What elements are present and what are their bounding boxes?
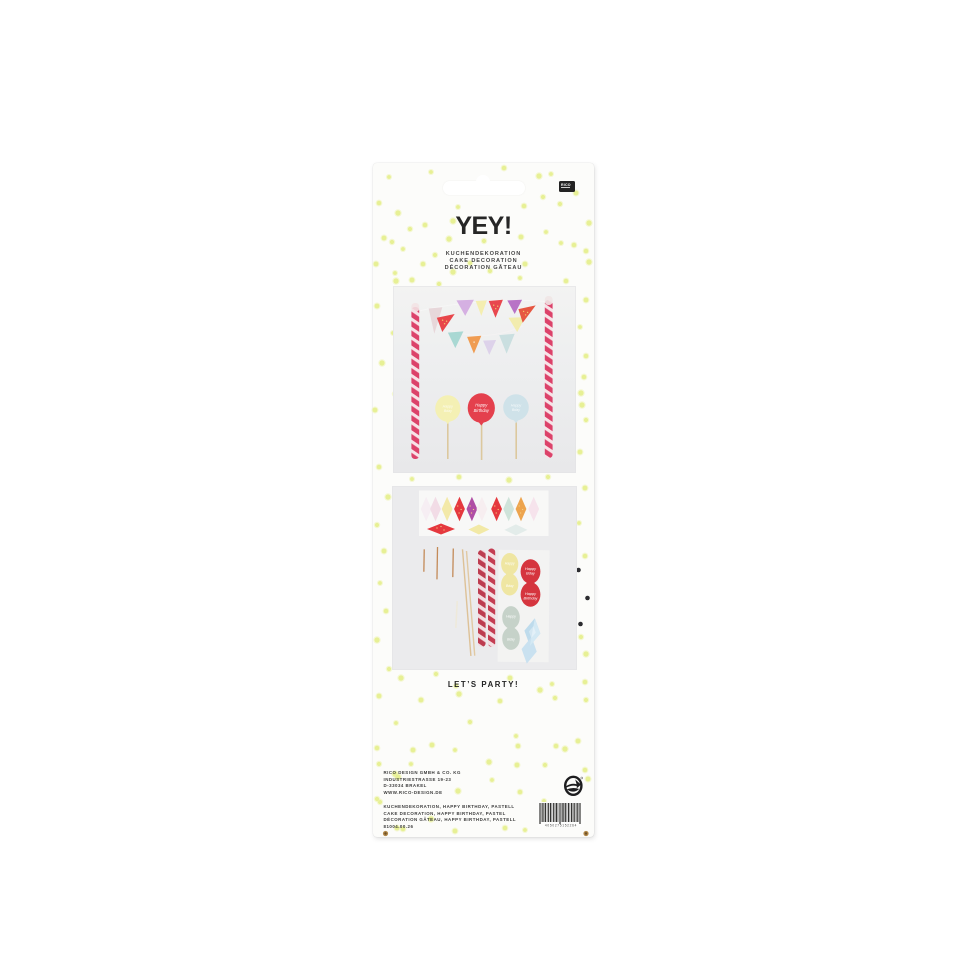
svg-text:Birthday: Birthday xyxy=(524,596,539,600)
svg-text:Bday: Bday xyxy=(526,571,536,575)
svg-text:Happy: Happy xyxy=(505,562,515,566)
svg-text:4050275152264: 4050275152264 xyxy=(545,823,577,827)
svg-text:Birthday: Birthday xyxy=(474,408,490,413)
svg-text:Happy: Happy xyxy=(506,615,516,619)
svg-text:Happy: Happy xyxy=(443,405,454,409)
svg-text:Happy: Happy xyxy=(525,592,537,596)
svg-text:Bday: Bday xyxy=(512,408,520,412)
svg-text:Happy: Happy xyxy=(525,567,537,571)
svg-text:Bday: Bday xyxy=(507,638,515,642)
svg-text:Bday: Bday xyxy=(444,409,452,413)
svg-text:Happy: Happy xyxy=(475,403,488,408)
svg-text:Happy: Happy xyxy=(511,404,522,408)
svg-text:Bday: Bday xyxy=(506,584,514,588)
